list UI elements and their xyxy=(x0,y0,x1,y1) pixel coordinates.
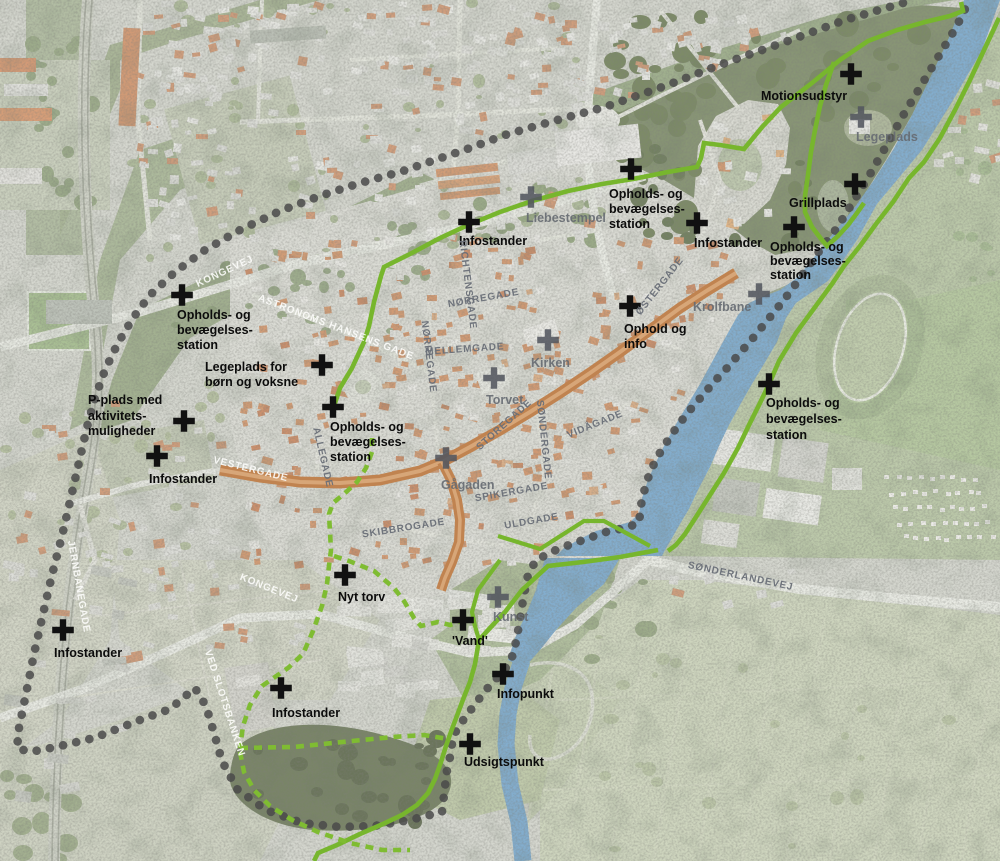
svg-text:Liebestempel: Liebestempel xyxy=(526,211,606,225)
svg-text:bevægelses-: bevægelses- xyxy=(766,412,842,426)
svg-text:Motionsudstyr: Motionsudstyr xyxy=(761,89,847,103)
svg-text:bevægelses-: bevægelses- xyxy=(177,323,253,337)
svg-text:info: info xyxy=(624,337,647,351)
svg-text:Infopunkt: Infopunkt xyxy=(497,687,555,701)
svg-text:Ophold og: Ophold og xyxy=(624,322,686,336)
svg-text:Opholds- og: Opholds- og xyxy=(330,420,404,434)
svg-text:børn og voksne: børn og voksne xyxy=(205,375,298,389)
svg-text:bevægelses-: bevægelses- xyxy=(609,202,685,216)
svg-text:station: station xyxy=(330,450,371,464)
svg-text:Udsigtspunkt: Udsigtspunkt xyxy=(464,755,545,769)
svg-text:bevægelses-: bevægelses- xyxy=(770,254,846,268)
svg-text:station: station xyxy=(770,268,811,282)
svg-text:Infostander: Infostander xyxy=(54,646,122,660)
svg-text:Kunst: Kunst xyxy=(493,610,529,624)
svg-text:P-plads med: P-plads med xyxy=(88,393,162,407)
svg-text:Krolfbane: Krolfbane xyxy=(693,300,751,314)
svg-text:muligheder: muligheder xyxy=(88,424,156,438)
svg-text:Opholds- og: Opholds- og xyxy=(770,240,844,254)
svg-text:Legeplads for: Legeplads for xyxy=(205,360,287,374)
svg-text:bevægelses-: bevægelses- xyxy=(330,435,406,449)
svg-text:station: station xyxy=(609,217,650,231)
svg-text:Grillplads: Grillplads xyxy=(789,196,847,210)
svg-text:Infostander: Infostander xyxy=(694,236,762,250)
svg-text:station: station xyxy=(766,428,807,442)
svg-text:'Vand': 'Vand' xyxy=(452,634,488,648)
svg-text:station: station xyxy=(177,338,218,352)
svg-text:Opholds- og: Opholds- og xyxy=(609,187,683,201)
svg-text:Kirken: Kirken xyxy=(531,356,570,370)
svg-text:Infostander: Infostander xyxy=(272,706,340,720)
svg-text:Opholds- og: Opholds- og xyxy=(766,396,840,410)
svg-text:Nyt torv: Nyt torv xyxy=(338,590,385,604)
svg-text:Legeplads: Legeplads xyxy=(856,130,918,144)
svg-text:Opholds- og: Opholds- og xyxy=(177,308,251,322)
svg-text:aktivitets-: aktivitets- xyxy=(88,409,146,423)
svg-text:Gågaden: Gågaden xyxy=(441,478,495,492)
svg-text:Infostander: Infostander xyxy=(149,472,217,486)
